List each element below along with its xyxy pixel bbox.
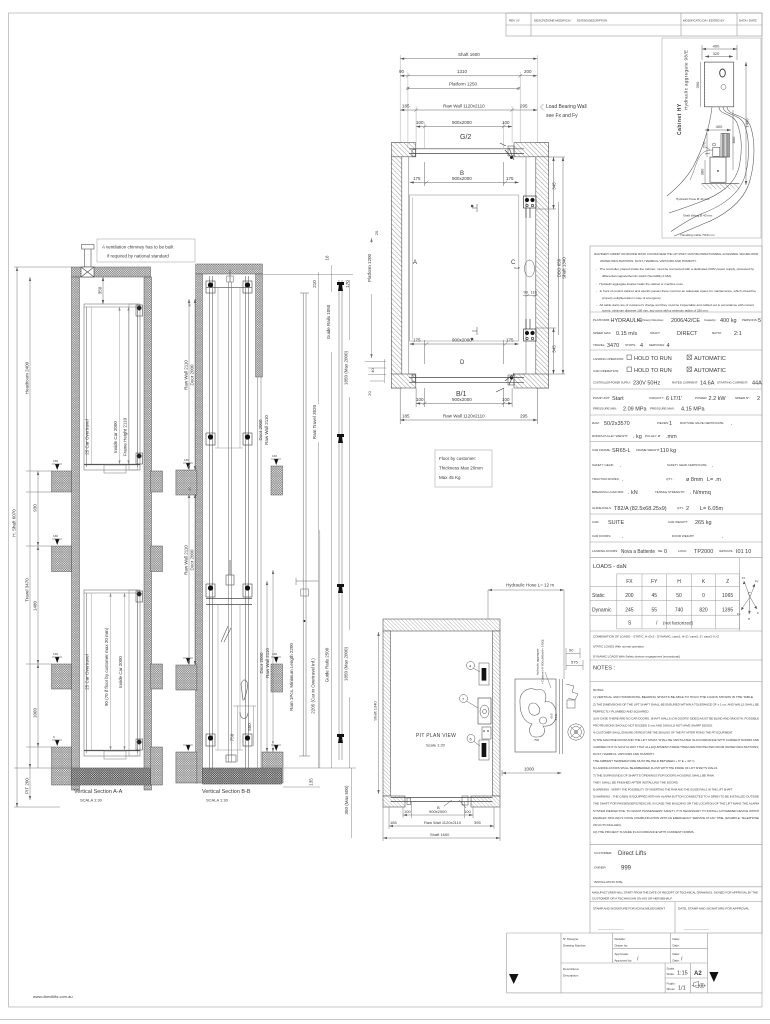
svg-text:Shaft 1600: Shaft 1600 [458, 52, 480, 57]
svg-text:RE:: RE: [658, 549, 663, 553]
svg-text:170: 170 [345, 280, 350, 288]
svg-text:Fy: Fy [755, 579, 759, 583]
svg-text:Hydraulic Hose L= 12 m: Hydraulic Hose L= 12 m [506, 583, 554, 588]
svg-text:16: 16 [324, 255, 329, 261]
svg-text:SPEED N°:: SPEED N°: [735, 396, 750, 400]
svg-text:100: 100 [502, 397, 510, 402]
svg-text:. kg: . kg [633, 434, 642, 440]
svg-text:LOADS - daN: LOADS - daN [593, 564, 627, 570]
svg-text:1060: 1060 [33, 707, 38, 718]
svg-text:90: 90 [399, 69, 405, 74]
svg-text:SPEED MAX:: SPEED MAX: [593, 331, 612, 335]
svg-text:Sheet:: Sheet: [667, 987, 676, 991]
svg-text:Door 2000: Door 2000 [259, 652, 264, 674]
svg-text:185: 185 [390, 820, 397, 825]
svg-text:if required by national standa: if required by national standard [107, 254, 169, 259]
svg-text:CUSTOMER:: CUSTOMER: [594, 851, 612, 855]
svg-text:Data:: Data: [673, 952, 680, 956]
svg-text:Raw Wall 2110: Raw Wall 2110 [264, 415, 269, 445]
svg-text:Drawn by:: Drawn by: [615, 944, 629, 948]
svg-text:4: 4 [640, 343, 643, 349]
svg-text:H: H [677, 579, 681, 585]
svg-text:PIT 200: PIT 200 [25, 778, 30, 794]
svg-text:SERVICES:: SERVICES: [649, 343, 665, 347]
svg-text:135: 135 [309, 778, 314, 786]
svg-text:QTY: .: QTY: . [666, 477, 675, 481]
svg-text:SCALA 1:30: SCALA 1:30 [80, 798, 103, 803]
svg-text:CARRIED OUT IN SUCH A WAY THAT: CARRIED OUT IN SUCH A WAY THAT ALL EQUIP… [593, 745, 759, 749]
svg-text:90 (70 if floor by customer: 90 (70 if floor by customer max 20 mm) [104, 627, 109, 706]
svg-text:1065: 1065 [722, 593, 733, 599]
svg-text:DYNAMIC LOADS With Safety devi: DYNAMIC LOADS With Safety devices engage… [593, 655, 680, 659]
svg-text:175: 175 [413, 338, 421, 343]
svg-text:norms, minimum diameter 100 mm: norms, minimum diameter 100 mm, any curv… [602, 309, 709, 313]
svg-text:SAFETY GEAR CERTIFICATE:: SAFETY GEAR CERTIFICATE: [667, 463, 707, 467]
svg-text:Fz: Fz [742, 576, 746, 580]
svg-text:Floor by customer:: Floor by customer: [439, 456, 476, 461]
svg-text:820: 820 [699, 608, 708, 614]
svg-text:RATIO:: RATIO: [712, 331, 722, 335]
svg-text:D: D [460, 360, 465, 366]
svg-text:A: A [413, 260, 417, 266]
svg-text:130: 130 [272, 454, 277, 458]
svg-text:40: 40 [370, 368, 375, 373]
svg-text:NOTES :: NOTES : [593, 666, 615, 672]
svg-text:7) THE SURROUNDS OF SHAFT'S OP: 7) THE SURROUNDS OF SHAFT'S OPENINGS FOR… [593, 773, 715, 777]
svg-text:380: 380 [700, 168, 705, 175]
svg-text:HOLD TO RUN: HOLD TO RUN [634, 356, 672, 362]
svg-text:PIT PLAN VIEW: PIT PLAN VIEW [416, 733, 456, 739]
svg-text:AUTOMATIC: AUTOMATIC [694, 368, 726, 374]
svg-text:+ Cabinet HY 800x380x(H= 14: + Cabinet HY 800x380x(H= 1450) [541, 640, 545, 685]
svg-text:800: 800 [731, 136, 736, 143]
svg-text:25 Car Overtravel: 25 Car Overtravel [85, 654, 90, 690]
svg-text:STAMP AND SIGNATURE FOR ACKNOW: STAMP AND SIGNATURE FOR ACKNOWLEDGMENT [593, 907, 665, 911]
svg-text:14.6A: 14.6A [700, 381, 715, 387]
svg-text:CAR OPERATION:: CAR OPERATION: [593, 369, 619, 373]
svg-text:Platform 1250: Platform 1250 [449, 82, 478, 87]
svg-text:4: 4 [667, 343, 670, 349]
svg-text:930: 930 [33, 504, 38, 512]
svg-text:185: 185 [402, 414, 410, 419]
svg-text:Static: Static [592, 593, 605, 599]
svg-text:2:1: 2:1 [734, 331, 742, 337]
svg-text:Shaft Wiring Ø 40 mm: Shaft Wiring Ø 40 mm [683, 214, 713, 218]
svg-text:LANDING OPERATION:: LANDING OPERATION: [593, 357, 624, 361]
svg-text:900x2000: 900x2000 [452, 397, 472, 402]
svg-text:CAR:: CAR: [592, 520, 599, 524]
svg-text:ø 8mm: ø 8mm [686, 477, 704, 483]
svg-text:CAR WEIGHT:: CAR WEIGHT: [668, 520, 688, 524]
svg-text:Data:: Data: [673, 937, 680, 941]
svg-text:Raw Wall 1120x2110: Raw Wall 1120x2110 [443, 414, 485, 419]
svg-text:1310: 1310 [457, 69, 468, 74]
svg-text:_______________: _______________ [683, 927, 709, 931]
svg-text:Hydraulic aggregate 98/E: Hydraulic aggregate 98/E [684, 50, 689, 110]
svg-text:Scale 1:20: Scale 1:20 [426, 743, 446, 748]
svg-text:100: 100 [502, 120, 510, 125]
svg-text:0: 0 [702, 593, 705, 599]
svg-text:90: 90 [524, 290, 529, 295]
svg-text:PERSONS:: PERSONS: [742, 318, 758, 322]
svg-text:H: H [748, 617, 750, 621]
svg-text:- The controller, placed ins: - The controller, placed inside the cabi… [596, 267, 755, 271]
svg-text:4.15 MPa: 4.15 MPa [681, 407, 705, 413]
svg-text:320: 320 [713, 51, 720, 56]
svg-text:N° Disegno:: N° Disegno: [563, 937, 579, 941]
svg-text:Capacity:: Capacity: [704, 318, 717, 322]
svg-text:210: 210 [312, 280, 317, 288]
svg-text:Inside Car 2000: Inside Car 2000 [118, 656, 123, 688]
svg-text:130: 130 [53, 652, 58, 656]
svg-text:PLATFORM:: PLATFORM: [593, 318, 610, 322]
svg-text:400: 400 [716, 124, 723, 129]
svg-text:Cabinet HY: Cabinet HY [677, 103, 683, 135]
svg-text:90: 90 [188, 487, 192, 491]
svg-text:Hydraulic Hose Ø 40 mm: Hydraulic Hose Ø 40 mm [676, 197, 710, 201]
svg-text:Z: Z [726, 579, 729, 585]
svg-text:TRAVEL:: TRAVEL: [593, 343, 605, 347]
svg-text:2205 (Car in Overtravel in: 2205 (Car in Overtravel inf.) [311, 658, 316, 714]
svg-text:0: 0 [664, 549, 667, 555]
svg-text:50/2x3570: 50/2x3570 [604, 421, 630, 427]
svg-text:WATER INFILTRATIONS, DUST, HAR: WATER INFILTRATIONS, DUST, HARMFUL VAPOU… [600, 259, 697, 263]
svg-text:45: 45 [652, 593, 658, 599]
svg-text:20: 20 [367, 391, 372, 396]
svg-text:CUSTOMER OR A TECHNICIAN ON HI: CUSTOMER OR A TECHNICIAN ON HIS OR HER B… [592, 897, 673, 901]
svg-text:2.2 kW: 2.2 kW [709, 396, 727, 402]
svg-text:Inside Car 2000: Inside Car 2000 [113, 421, 118, 453]
svg-text:SCALA 1:30: SCALA 1:30 [206, 798, 229, 803]
svg-text:T82/A (82.5x68.25x9): T82/A (82.5x68.25x9) [614, 506, 667, 512]
svg-text:Headroom 2400: Headroom 2400 [25, 361, 30, 394]
svg-text:MANUFACTURER WILL START FROM T: MANUFACTURER WILL START FROM THE DATE OF… [592, 891, 758, 895]
svg-text:CAR FRAME:: CAR FRAME: [592, 448, 611, 452]
svg-text:390: 390 [695, 81, 700, 88]
svg-text:LANDING DOORS:: LANDING DOORS: [592, 549, 618, 553]
svg-text:Door 2000: Door 2000 [190, 549, 195, 571]
svg-text:FX: FX [626, 579, 633, 585]
svg-text:Description:: Description: [563, 974, 579, 978]
svg-text:2.09 MPa: 2.09 MPa [623, 407, 647, 413]
svg-text:2: 2 [757, 396, 760, 402]
svg-text:Drawing Number:: Drawing Number: [563, 944, 586, 948]
svg-text:FY: FY [651, 579, 658, 585]
svg-text:25 Car Overtravel: 25 Car Overtravel [85, 419, 90, 455]
svg-text:265 kg: 265 kg [695, 520, 712, 526]
svg-text:OWNER:: OWNER: [594, 866, 607, 870]
svg-text:Fx: Fx [737, 612, 741, 616]
svg-text:SYSTEM INEFFECTIVE, TO GRANT P: SYSTEM INEFFECTIVE, TO GRANT PASSENGERS'… [593, 809, 759, 813]
svg-text:Ram Travel 3520: Ram Travel 3520 [312, 404, 317, 439]
svg-text:Direct Lifts: Direct Lifts [618, 851, 646, 857]
svg-text:LOCK:: LOCK: [678, 549, 687, 553]
svg-text:PRESSURE MAX:: PRESSURE MAX: [650, 407, 675, 411]
svg-text:. kN: . kN [628, 490, 638, 496]
svg-text:Raw Wall 1120x2110: Raw Wall 1120x2110 [443, 104, 485, 109]
svg-text:THE SHAFT FOR PASSENGERS RESCU: THE SHAFT FOR PASSENGERS RESCUE. IN CASE… [593, 802, 759, 806]
svg-text:4140: 4140 [554, 713, 558, 720]
svg-text:- In front of control cabine: - In front of control cabinet and electr… [596, 289, 756, 293]
svg-text:SAFETY GEAR:: SAFETY GEAR: [592, 463, 614, 467]
svg-text:175: 175 [506, 338, 514, 343]
svg-text:see Fx and Fy: see Fx and Fy [546, 113, 578, 119]
svg-text:Door 2000: Door 2000 [258, 419, 263, 441]
svg-text:PERFECTLY PLUMBED AND SQUARED.: PERFECTLY PLUMBED AND SQUARED. [593, 709, 649, 713]
svg-text:QTY:: QTY: [677, 506, 684, 510]
svg-text:STATIC LOADS With normal opera: STATIC LOADS With normal operation [593, 645, 644, 649]
svg-text:I01 10: I01 10 [736, 549, 751, 555]
svg-text:245: 245 [625, 608, 634, 614]
svg-text:ROPES-PULLEY WEIGHT:: ROPES-PULLEY WEIGHT: [592, 434, 628, 438]
svg-text:55: 55 [652, 608, 658, 614]
svg-text:HYDRAULIC: HYDRAULIC [611, 318, 643, 324]
svg-text:1395: 1395 [722, 608, 733, 614]
svg-text:Approvato:: Approvato: [615, 952, 630, 956]
svg-text:3470: 3470 [607, 343, 619, 349]
svg-text:550: 550 [247, 723, 252, 731]
svg-text:10) THE PROJECT IS MADE IN ACC: 10) THE PROJECT IS MADE IN ACCORDANCE WI… [593, 830, 695, 834]
svg-text:CONTROLLER-POWER SUPPLY:: CONTROLLER-POWER SUPPLY: [593, 381, 631, 385]
svg-text:0.15 m/s: 0.15 m/s [616, 331, 637, 337]
svg-text:DATA / DATE: DATA / DATE [739, 19, 757, 23]
svg-text:6) LANDING DOORS SHALL BE EMBE: 6) LANDING DOORS SHALL BE EMBEDDED FLUSH… [593, 766, 718, 770]
svg-text:Raw Wall 2110: Raw Wall 2110 [265, 648, 270, 678]
svg-text:130: 130 [184, 458, 189, 462]
svg-text:A2: A2 [694, 971, 702, 977]
svg-text:www.directlifts.com.au: www.directlifts.com.au [33, 994, 73, 999]
svg-text:6 LT/1': 6 LT/1' [666, 396, 682, 402]
svg-text:185: 185 [402, 104, 410, 109]
svg-text:999: 999 [621, 866, 632, 872]
svg-text:OR AUTO DIALLER).: OR AUTO DIALLER). [593, 823, 622, 827]
svg-text:130: 130 [53, 459, 58, 463]
svg-text:SR65-L: SR65-L [612, 448, 631, 454]
svg-text:DIRECT: DIRECT [677, 331, 698, 337]
svg-text:Scale:: Scale: [667, 972, 675, 976]
svg-text:295: 295 [520, 104, 528, 109]
svg-text:2) THE DIMENSIONS OF THE LIFT: 2) THE DIMENSIONS OF THE LIFT SHAFT SHAL… [593, 702, 759, 706]
svg-text:Guide Rails 1050: Guide Rails 1050 [326, 304, 331, 339]
svg-text:ENABLES TWO-WAYS VOICE COMMUNI: ENABLES TWO-WAYS VOICE COMMUNICATION WIT… [593, 816, 759, 820]
svg-text:900x2000: 900x2000 [452, 120, 472, 125]
svg-text:RATED CURRENT:: RATED CURRENT: [672, 381, 698, 385]
svg-text:THEY SHALL BE FINISHED AFTER I: THEY SHALL BE FINISHED AFTER INSTALLING … [593, 780, 679, 784]
svg-text:MODIFICATO DA / EDITED BY: MODIFICATO DA / EDITED BY [683, 19, 725, 23]
svg-text:CAPACITY:: CAPACITY: [649, 396, 665, 400]
svg-text:130: 130 [53, 534, 58, 538]
svg-text:600: 600 [550, 713, 554, 718]
svg-text:Travelling Cable 70x8 mm: Travelling Cable 70x8 mm [680, 233, 715, 237]
svg-text:100: 100 [416, 397, 424, 402]
svg-text:295: 295 [520, 414, 528, 419]
svg-text:STARTING CURRENT:: STARTING CURRENT: [717, 381, 748, 385]
svg-text:REV. N°: REV. N° [509, 19, 521, 23]
svg-text:230V 50Hz: 230V 50Hz [633, 381, 660, 387]
svg-text:CERTIFICATE:: CERTIFICATE: [719, 549, 733, 553]
svg-text:Shaft 1340: Shaft 1340 [373, 701, 378, 721]
svg-text:Guide Rails 2500: Guide Rails 2500 [325, 647, 330, 682]
svg-text:TP2000: TP2000 [694, 549, 713, 555]
svg-text:PROTRUSIONS SHOULD NOT EXCEED: PROTRUSIONS SHOULD NOT EXCEED 5 mm AND S… [593, 724, 713, 728]
svg-text:2006/42/CE: 2006/42/CE [671, 318, 700, 324]
svg-text:5) THE MACHINE ROOM AND THE LI: 5) THE MACHINE ROOM AND THE LIFT SHAFT S… [593, 738, 760, 742]
svg-text:- All cable ducts are of cus: - All cable ducts are of customer's char… [596, 303, 754, 307]
svg-text:Door 2000: Door 2000 [190, 364, 195, 386]
svg-text:G/2: G/2 [460, 134, 471, 141]
svg-text:200: 200 [524, 69, 532, 74]
svg-text:_______________: _______________ [597, 927, 623, 931]
svg-text:CoP: CoP [514, 266, 520, 270]
svg-text:HOLD TO RUN: HOLD TO RUN [634, 368, 672, 374]
svg-text:Max 45 Kg: Max 45 Kg [439, 475, 461, 480]
svg-text:1850 (Max 2000): 1850 (Max 2000) [344, 350, 349, 385]
svg-text:100: 100 [464, 809, 471, 814]
svg-text:575: 575 [571, 660, 578, 665]
svg-text:Redatto:: Redatto: [615, 937, 626, 941]
svg-text:SHAFT:: SHAFT: [650, 331, 660, 335]
svg-text:INSTALLATION SITE:: INSTALLATION SITE: [594, 880, 623, 884]
svg-text:H. Shaft 6070: H. Shaft 6070 [12, 509, 17, 537]
svg-text:- Hydraulic aggregate locate: - Hydraulic aggregate located inside the… [596, 282, 684, 286]
svg-text:POWER:: POWER: [695, 396, 707, 400]
svg-text:110 kg: 110 kg [660, 448, 676, 454]
svg-text:Ram 1Pcs. Minimum Length 2: Ram 1Pcs. Minimum Length 2200 [289, 643, 294, 711]
svg-text:Nova a Battente: Nova a Battente [621, 549, 655, 555]
svg-text:SUITE: SUITE [608, 520, 625, 526]
svg-text:3) IN CASE THERE ARE NO CAR DO: 3) IN CASE THERE ARE NO CAR DOORS, SHAFT… [593, 717, 759, 721]
svg-text:TENSILE STRENGTH:: TENSILE STRENGTH: [655, 490, 685, 494]
svg-text:110: 110 [531, 290, 538, 295]
svg-text:DESCRIZIONE MODIFICA /: DESCRIZIONE MODIFICA / [534, 19, 572, 23]
svg-text:RUPTURE VALVE CERTIFICATE:: RUPTURE VALVE CERTIFICATE: [680, 421, 724, 425]
svg-text:CAR DOORS:: CAR DOORS: [592, 534, 611, 538]
svg-text:EDITING/DESCRIPTION: EDITING/DESCRIPTION [577, 19, 607, 23]
svg-text:NOTES: NOTES [593, 688, 603, 692]
svg-text:FRAME WEIGHT:: FRAME WEIGHT: [636, 448, 660, 452]
svg-text:50: 50 [676, 593, 682, 599]
svg-text:Platform 1200: Platform 1200 [367, 253, 372, 282]
svg-text:DATE, STAMP AND SIGNATURE FOR: DATE, STAMP AND SIGNATURE FOR APPROVAL. [678, 907, 750, 911]
svg-text:Vertical Section A-A: Vertical Section A-A [74, 789, 123, 795]
svg-text:RAM:: RAM: [592, 421, 600, 425]
svg-text:DUST, HARMFUL VAPOURS AND HUMI: DUST, HARMFUL VAPOURS AND HUMIDITY. [593, 752, 655, 756]
svg-text:STOPS:: STOPS: [625, 343, 636, 347]
svg-text:5: 5 [758, 318, 761, 324]
svg-text:1000: 1000 [524, 767, 535, 772]
svg-text:Foglio:: Foglio: [667, 982, 676, 986]
svg-text:400: 400 [713, 44, 720, 49]
svg-text:Vertical Section B-B: Vertical Section B-B [202, 789, 251, 795]
svg-text:PIECES:: PIECES: [657, 421, 669, 425]
svg-text:Load Bearing Wall: Load Bearing Wall [546, 104, 587, 110]
svg-text:200: 200 [625, 593, 634, 599]
svg-text:1/1: 1/1 [678, 986, 686, 992]
svg-text:900x2000: 900x2000 [452, 176, 472, 181]
svg-text:400 kg: 400 kg [720, 318, 737, 324]
svg-text:. N/mmq: . N/mmq [690, 490, 711, 496]
svg-text:1: 1 [669, 421, 672, 427]
svg-text:Shaft 1340: Shaft 1340 [562, 257, 567, 279]
svg-text:4) CUSTOMER SHALL ENSURE OR RE: 4) CUSTOMER SHALL ENSURE OR RESTORE THE … [593, 731, 733, 735]
svg-text:PULLEY: Ø: PULLEY: Ø [645, 434, 661, 438]
svg-text:differential magnetothermic sw: differential magnetothermic switch (Sens… [602, 274, 672, 278]
svg-text:8) WARNING : VERIFY THE POSSIB: 8) WARNING : VERIFY THE POSSIBILITY OF I… [593, 788, 733, 792]
svg-text:20: 20 [374, 230, 379, 235]
svg-text:740: 740 [675, 608, 684, 614]
svg-text:TRACTION ROPES:: TRACTION ROPES: [592, 477, 620, 481]
svg-text:PRESSURE MIN:: PRESSURE MIN: [593, 407, 617, 411]
svg-text:Frame Height 2110: Frame Height 2110 [123, 417, 128, 456]
svg-text:350: 350 [98, 286, 103, 294]
svg-text:Date:: Date: [673, 944, 680, 948]
svg-text:Raw Wall 2110: Raw Wall 2110 [184, 360, 189, 390]
svg-text:345: 345 [552, 182, 557, 190]
svg-text:175: 175 [506, 176, 514, 181]
svg-text:100: 100 [416, 120, 424, 125]
svg-text:.mm: .mm [666, 434, 677, 440]
svg-text:2: 2 [686, 506, 689, 512]
svg-text:AUTOMATIC: AUTOMATIC [694, 356, 726, 362]
svg-text:44A: 44A [752, 381, 762, 387]
svg-text:750: 750 [230, 733, 235, 741]
svg-text:Hydraulic aggregate: Hydraulic aggregate [536, 648, 540, 675]
svg-text:Approved by:: Approved by: [615, 959, 633, 963]
svg-text:L= 6.05m: L= 6.05m [700, 506, 724, 512]
svg-text:900x2000: 900x2000 [429, 809, 447, 814]
svg-text:Raw Wall 1120x2110: Raw Wall 1120x2110 [424, 820, 462, 825]
svg-text:700: 700 [534, 738, 539, 742]
svg-text:PUMP UNIT:: PUMP UNIT: [593, 396, 610, 400]
svg-text:Raw Wall 2110: Raw Wall 2110 [184, 545, 189, 575]
svg-text:GUIDE RAILS:: GUIDE RAILS: [592, 506, 612, 510]
svg-text:MACHINERY CABINET OR MACHINE R: MACHINERY CABINET OR MACHINE ROOM, LOCAT… [594, 252, 758, 256]
svg-text:350 (Max 500): 350 (Max 500) [344, 785, 349, 815]
svg-text:9) WARNING : THE CABIN IS EQUI: 9) WARNING : THE CABIN IS EQUIPPED WITH … [593, 795, 759, 799]
svg-text:1:15: 1:15 [677, 971, 688, 977]
svg-text:345: 345 [552, 345, 557, 353]
svg-text:DOOR WEIGHT:: DOOR WEIGHT: [672, 534, 695, 538]
svg-text:BREAKING LOAD MIN:: BREAKING LOAD MIN: [592, 490, 624, 494]
svg-text:Dynamic: Dynamic [592, 608, 612, 614]
svg-text:1850 (Max 2000): 1850 (Max 2000) [344, 646, 349, 681]
svg-text:395: 395 [474, 820, 481, 825]
svg-text:Shaft 1600: Shaft 1600 [430, 832, 450, 837]
svg-text:properly enlighted also in cas: properly enlighted also in case of emerg… [602, 296, 662, 300]
svg-text:100: 100 [404, 809, 411, 814]
svg-text:900x2000: 900x2000 [452, 338, 472, 343]
svg-text:(not factorized): (not factorized) [663, 621, 694, 626]
svg-text:90: 90 [569, 648, 574, 653]
svg-text:Thickness Max 20mm: Thickness Max 20mm [439, 466, 483, 471]
svg-text:90: 90 [188, 303, 192, 307]
svg-text:175: 175 [413, 176, 421, 181]
svg-text:THE AMBIENT TEMPERATURE MUST B: THE AMBIENT TEMPERATURE MUST BE HELD BET… [593, 759, 696, 763]
svg-text:1480: 1480 [33, 600, 38, 611]
svg-text:Travel 3470: Travel 3470 [25, 578, 30, 602]
svg-text:COMBINATION OF LOADS: - STATIC: COMBINATION OF LOADS: - STATIC: H+Z+Z - … [593, 635, 719, 639]
svg-text:1) VERTICAL AND HORIZONTAL BEA: 1) VERTICAL AND HORIZONTAL BEARING SHAFT… [593, 695, 753, 699]
svg-text:Scala:: Scala: [667, 967, 675, 971]
svg-text:Descrizione:: Descrizione: [563, 967, 580, 971]
svg-text:A ventilation chimney has to b: A ventilation chimney has to be built [102, 245, 174, 250]
svg-text:Date:: Date: [673, 959, 680, 963]
svg-text:L= .m: L= .m [707, 477, 721, 483]
svg-text:Start: Start [612, 396, 624, 402]
